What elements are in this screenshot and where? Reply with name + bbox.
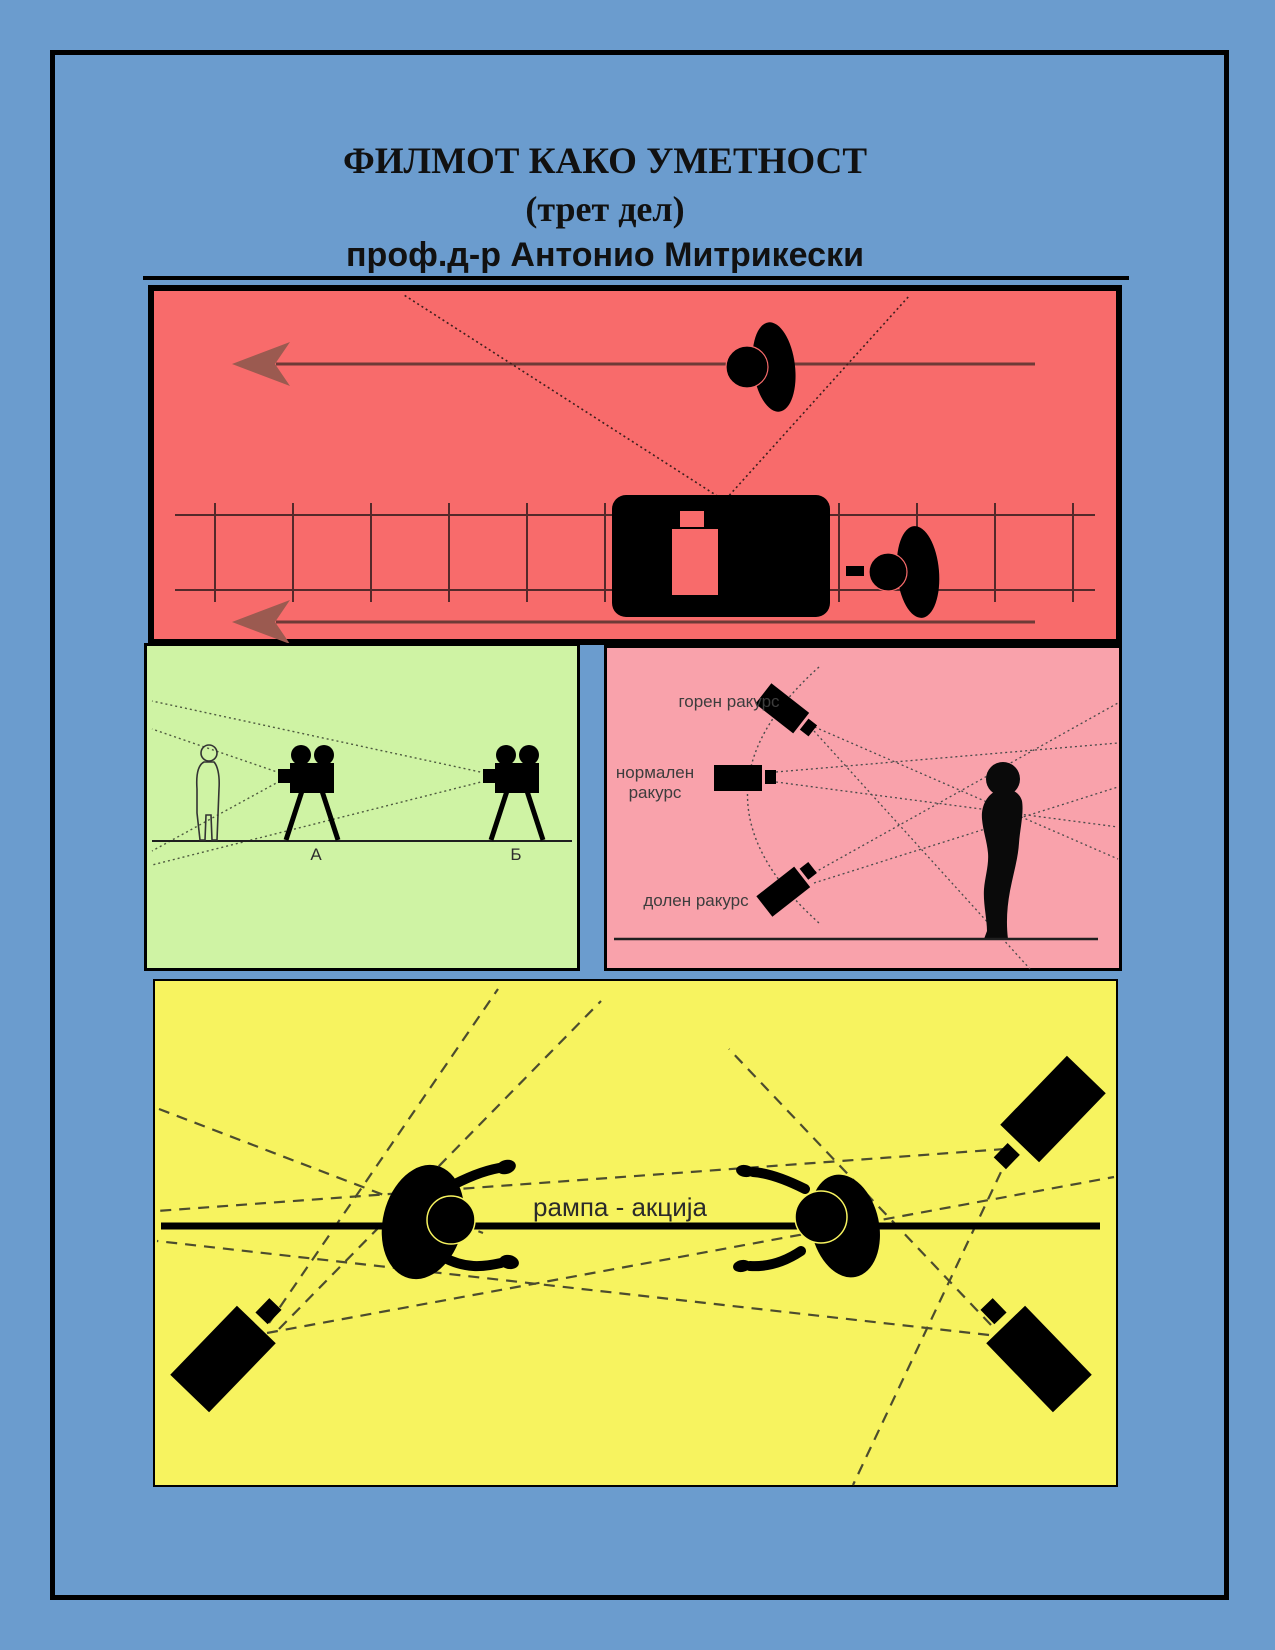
two-camera-positions-diagram (144, 643, 580, 971)
dolly-shot-diagram (148, 285, 1122, 645)
low-angle-label: долен ракурс (616, 891, 776, 911)
action-axis-label: рампа - акција (505, 1192, 735, 1223)
title-underline (143, 276, 1129, 280)
author-line: проф.д-р Антонио Митрикески (0, 236, 1210, 275)
camera-a-label: А (301, 845, 331, 865)
action-axis-diagram (153, 979, 1118, 1487)
green-panel-background (146, 645, 579, 970)
normal-angle-label: нормален ракурс (575, 763, 735, 803)
document-title: ФИЛМОТ КАКО УМЕТНОСТ (0, 140, 1210, 183)
normal-angle-label-line1: нормален (575, 763, 735, 783)
camera-cart-icon (612, 495, 830, 617)
high-angle-label: горен ракурс (649, 692, 809, 712)
document-page: ФИЛМОТ КАКО УМЕТНОСТ (трет дел) проф.д-р… (0, 0, 1275, 1650)
camera-b-label: Б (501, 845, 531, 865)
normal-angle-label-line2: ракурс (575, 783, 735, 803)
document-subtitle: (трет дел) (0, 188, 1210, 230)
